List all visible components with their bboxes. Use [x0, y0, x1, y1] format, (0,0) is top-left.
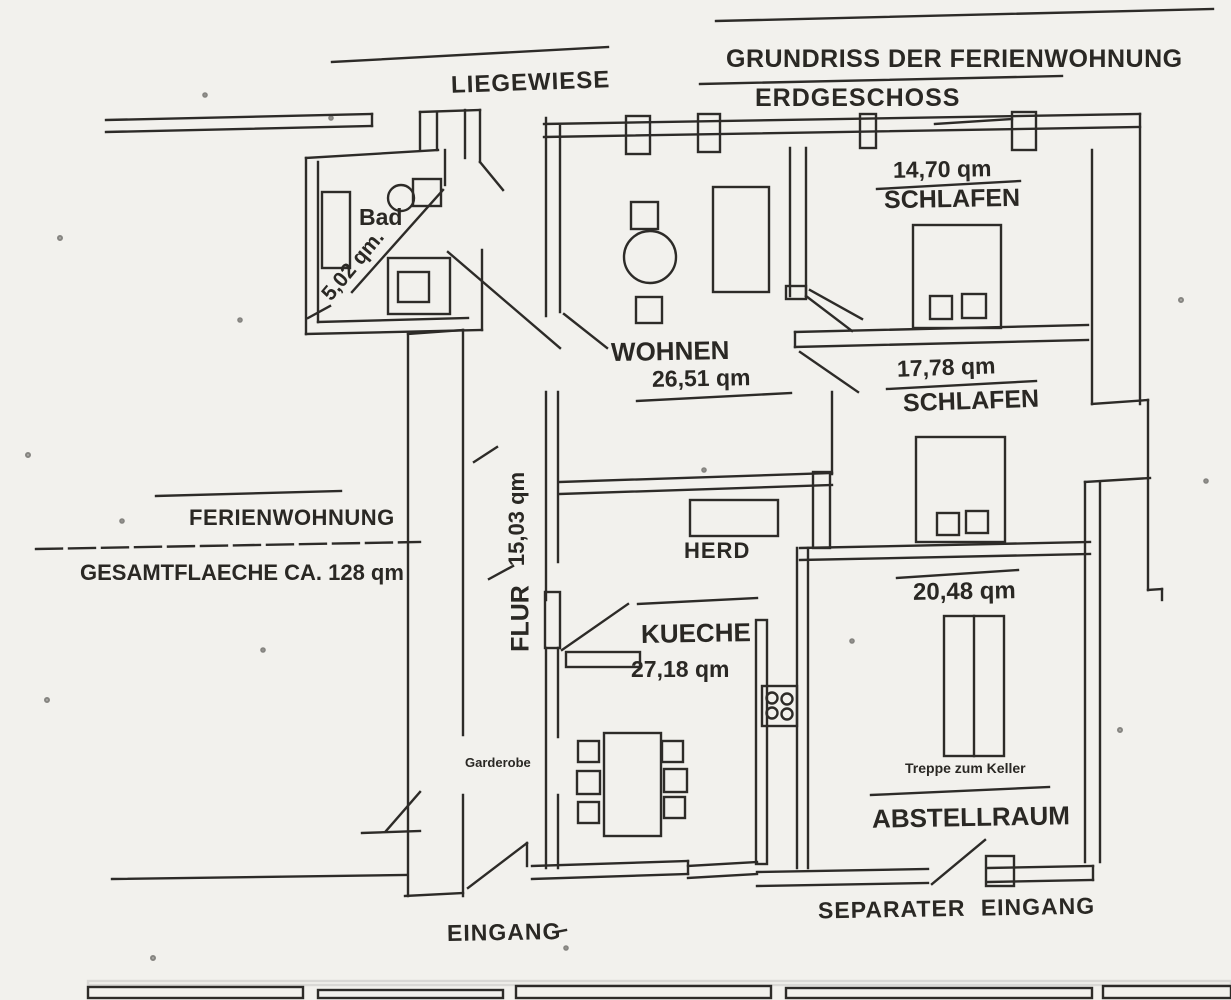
- livingroom-walls: [560, 148, 852, 494]
- cupboard-icon: [713, 187, 769, 292]
- floorplan-page: GRUNDRISS DER FERIENWOHNUNG ERDGESCHOSS …: [0, 0, 1231, 1000]
- wardrobe-label: Garderobe: [465, 756, 531, 769]
- lawn-label: LIEGEWIESE: [451, 68, 611, 98]
- chair-icon: [636, 297, 662, 323]
- room-area-flur: 15,03 qm: [506, 459, 528, 579]
- room-label-abstellraum: ABSTELLRAUM: [872, 802, 1070, 831]
- room-area-kueche: 27,18 qm: [631, 658, 729, 681]
- cellar-stairs-icon: [944, 616, 1004, 756]
- floorplan-drawing: [0, 0, 1231, 1000]
- room-label-flur: FLUR: [509, 579, 534, 659]
- cellar-stairs-label: Treppe zum Keller: [905, 761, 1026, 775]
- corridor-walls: [362, 330, 463, 896]
- apartment-name: FERIENWOHNUNG: [189, 507, 395, 529]
- page-title: GRUNDRISS DER FERIENWOHNUNG: [726, 47, 1183, 72]
- floor-label: ERDGESCHOSS: [755, 86, 960, 111]
- total-area: GESAMTFLAECHE CA. 128 qm: [80, 562, 404, 584]
- room-label-wohnen: WOHNEN: [611, 337, 730, 365]
- room-label-kueche: KUECHE: [641, 619, 751, 647]
- stove-label: HERD: [684, 540, 750, 562]
- bed-icon: [916, 437, 1005, 542]
- shower-icon: [388, 258, 450, 314]
- room-area-abstellraum: 20,48 qm: [913, 579, 1016, 605]
- room-area-wohnen: 26,51 qm: [652, 366, 751, 391]
- dining-table-icon: [577, 733, 687, 836]
- separate-entrance-label: SEPARATER EINGANG: [818, 895, 1096, 923]
- round-table-icon: [624, 231, 676, 283]
- room-label-schlafen-top: SCHLAFEN: [884, 186, 1021, 213]
- room-area-schlafen-top: 14,70 qm: [893, 157, 992, 182]
- side-table-icon: [631, 202, 658, 229]
- room-label-schlafen-mid: SCHLAFEN: [903, 387, 1040, 417]
- main-entrance-label: EINGANG: [447, 920, 562, 945]
- bedroom-divider-walls: [786, 286, 1088, 548]
- room-area-schlafen-mid: 17,78 qm: [897, 354, 996, 380]
- bed-icon: [913, 225, 1001, 328]
